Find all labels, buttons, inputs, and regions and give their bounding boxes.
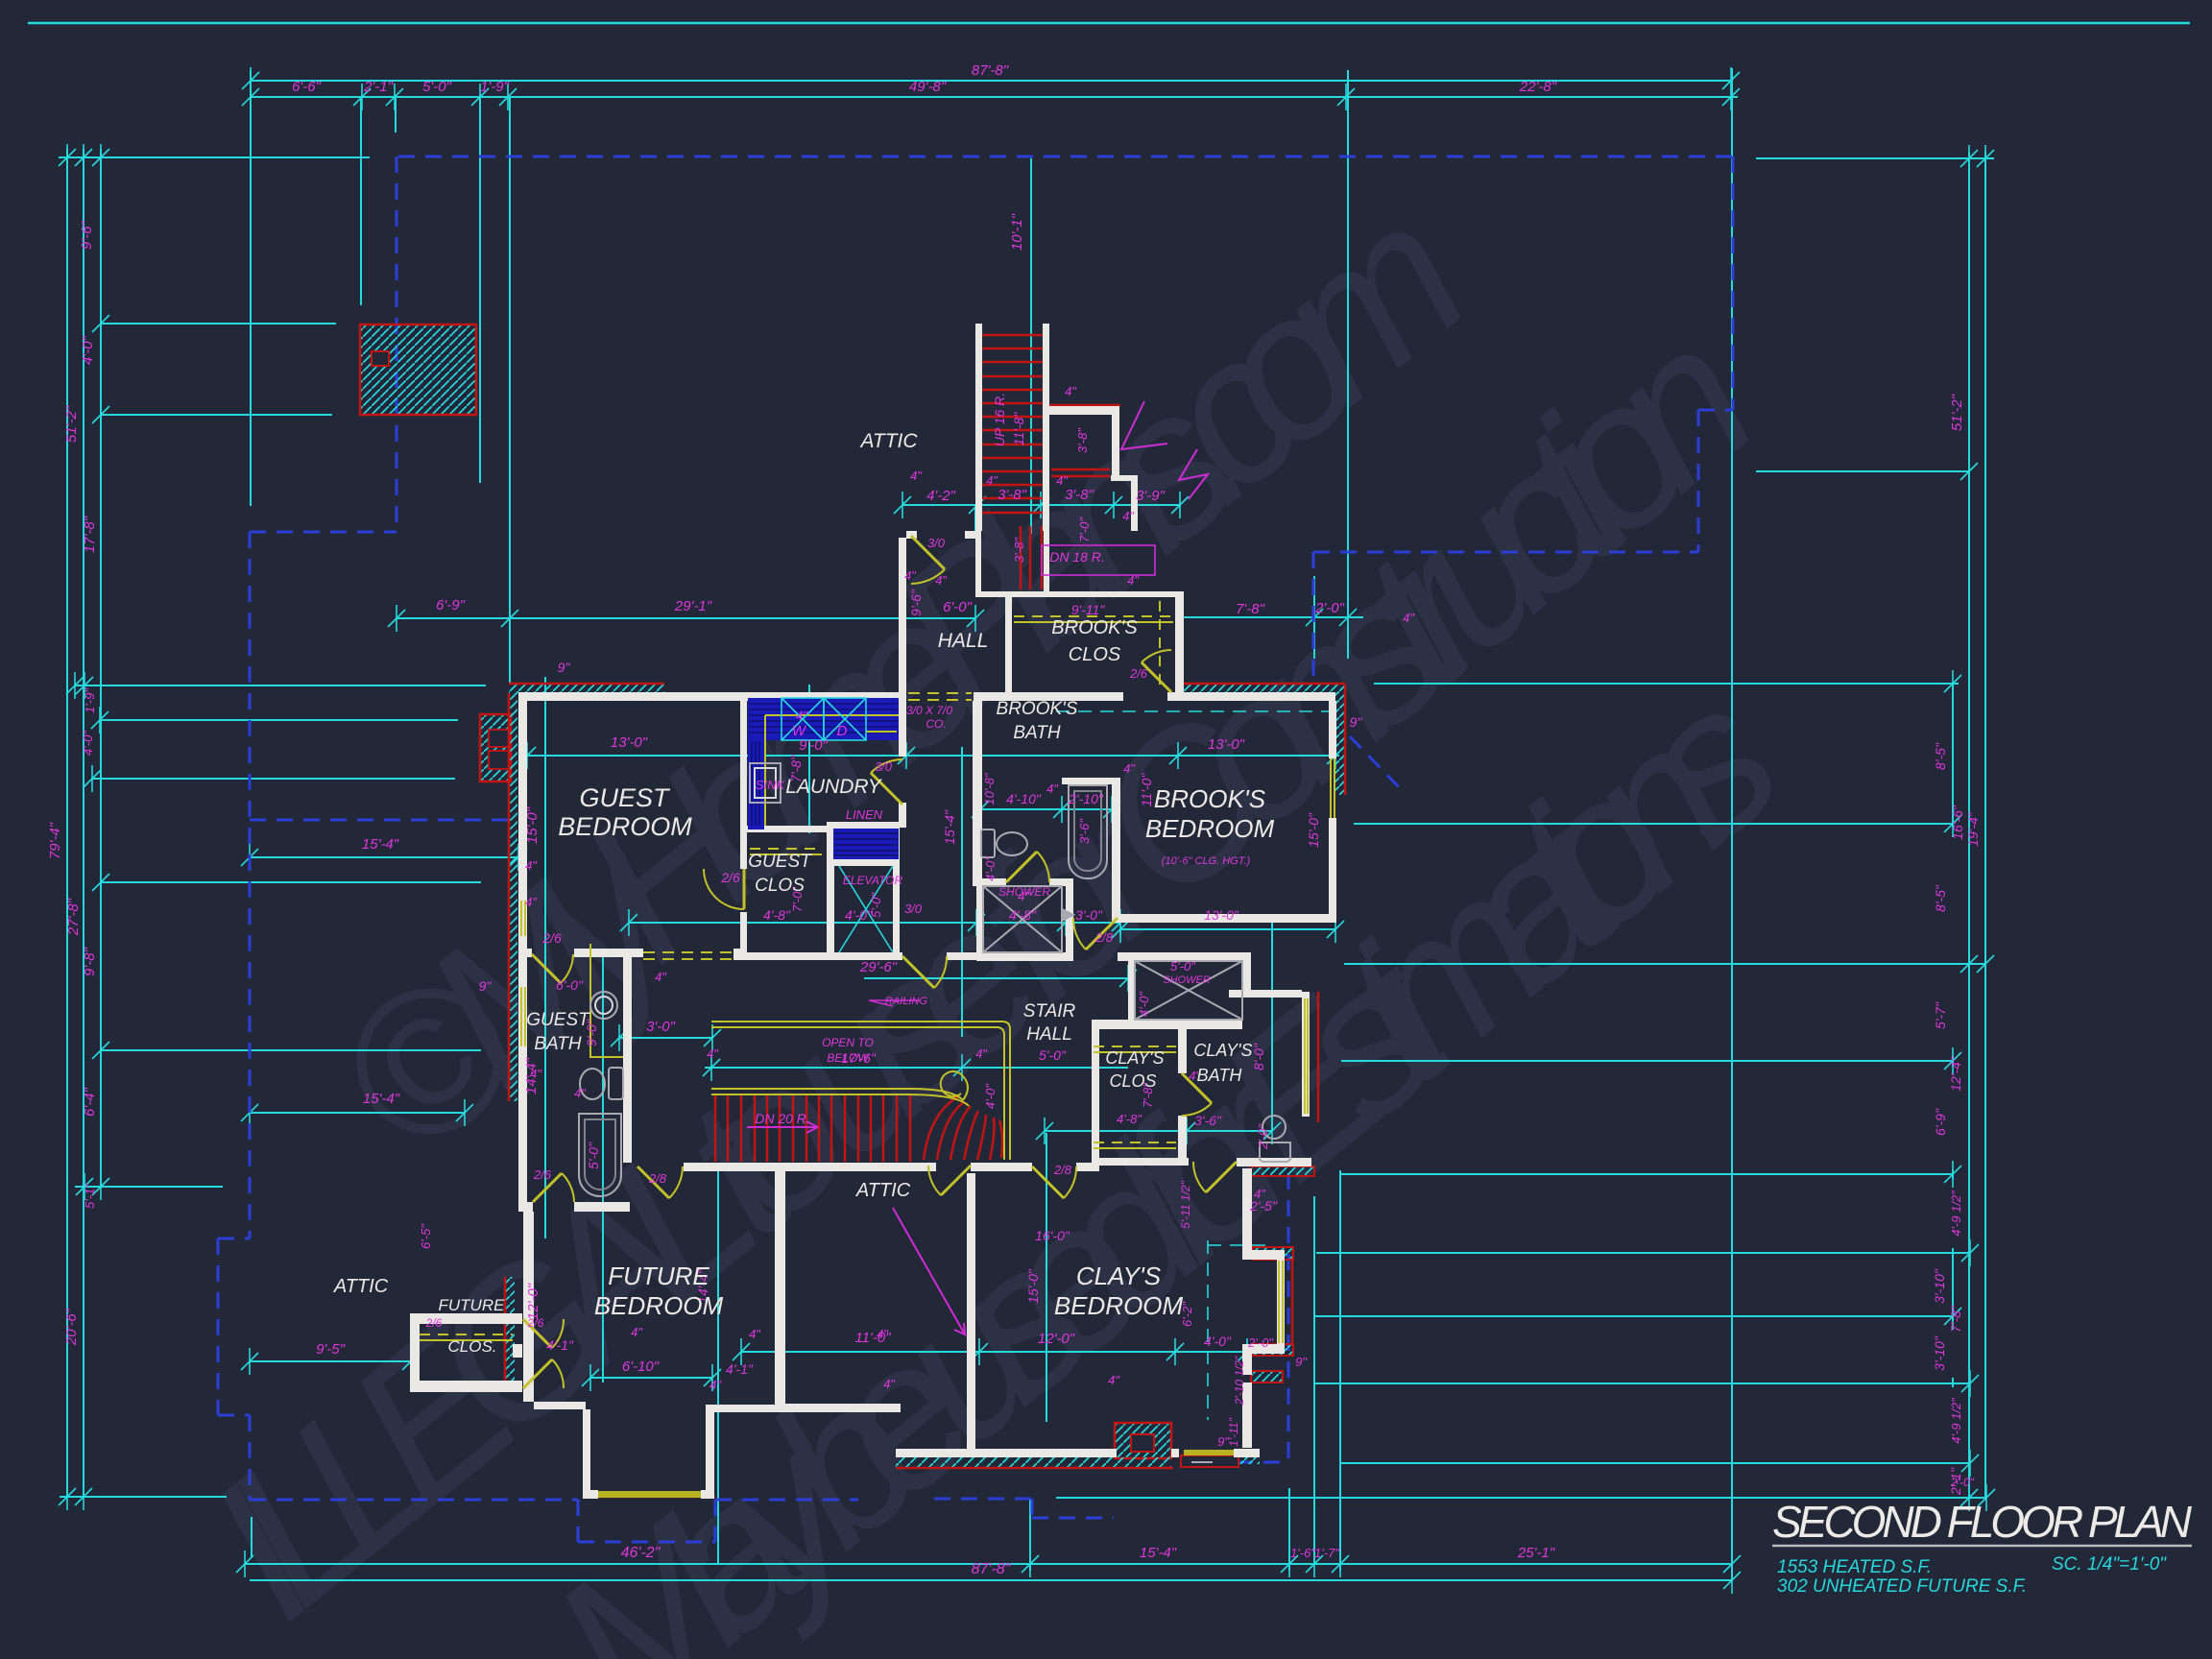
svg-text:9'-6": 9'-6"	[79, 220, 95, 250]
svg-text:12'-0": 12'-0"	[525, 1283, 541, 1320]
svg-text:HALL: HALL	[938, 630, 989, 652]
svg-text:ATTIC: ATTIC	[333, 1276, 389, 1297]
svg-text:2/6: 2/6	[533, 1167, 552, 1182]
svg-text:UP 16 R.: UP 16 R.	[992, 393, 1007, 446]
svg-text:CLAY'S: CLAY'S	[1193, 1041, 1252, 1060]
svg-text:2/6: 2/6	[425, 1316, 443, 1330]
svg-text:1'-9": 1'-9"	[480, 79, 510, 95]
svg-text:4'-9 1/2": 4'-9 1/2"	[1949, 1397, 1963, 1444]
svg-text:RAILING: RAILING	[885, 996, 927, 1007]
svg-text:7'-8": 7'-8"	[1948, 1305, 1963, 1333]
svg-text:4'-10": 4'-10"	[1006, 791, 1042, 806]
svg-text:4'-8": 4'-8"	[763, 907, 791, 923]
svg-text:15'-4": 15'-4"	[1140, 1545, 1177, 1561]
svg-text:4'-8": 4'-8"	[1009, 907, 1037, 923]
svg-text:4'-1": 4'-1"	[726, 1361, 754, 1377]
svg-text:19'-4": 19'-4"	[1965, 811, 1981, 847]
svg-text:7'-0": 7'-0"	[1077, 517, 1092, 542]
svg-text:15'-0": 15'-0"	[1025, 1268, 1041, 1304]
svg-text:4": 4"	[655, 970, 667, 984]
svg-text:4'-0": 4'-0"	[983, 855, 998, 881]
svg-text:2/6: 2/6	[527, 1316, 544, 1330]
svg-text:6'-9": 6'-9"	[1933, 1108, 1948, 1136]
svg-text:(10'-6" CLG. HGT.): (10'-6" CLG. HGT.)	[1162, 855, 1251, 867]
svg-text:4'-0": 4'-0"	[1204, 1334, 1232, 1349]
svg-text:2/6: 2/6	[541, 930, 562, 946]
svg-text:4": 4"	[1127, 573, 1140, 588]
svg-text:3/0: 3/0	[927, 536, 946, 550]
svg-text:17'-8": 17'-8"	[82, 516, 98, 553]
svg-text:13'-0": 13'-0"	[1208, 736, 1245, 753]
svg-text:4": 4"	[749, 1327, 761, 1341]
svg-text:4": 4"	[975, 1046, 988, 1061]
svg-text:BATH: BATH	[1013, 723, 1061, 743]
svg-text:11'-8": 11'-8"	[1011, 412, 1026, 446]
svg-text:2'-10 1/2": 2'-10 1/2"	[1233, 1356, 1246, 1406]
svg-text:4'-0": 4'-0"	[983, 1083, 998, 1109]
svg-text:3/0: 3/0	[875, 759, 893, 774]
svg-text:16'-0": 16'-0"	[1035, 1228, 1070, 1243]
svg-text:6'-6": 6'-6"	[292, 79, 322, 95]
svg-text:STAIR: STAIR	[1023, 1001, 1076, 1022]
svg-text:BEDROOM: BEDROOM	[1054, 1291, 1184, 1320]
svg-text:11'-0": 11'-0"	[1139, 773, 1154, 807]
svg-text:6'-4": 6'-4"	[82, 1087, 98, 1117]
svg-text:W: W	[792, 723, 807, 739]
svg-text:302 UNHEATED FUTURE S.F.: 302 UNHEATED FUTURE S.F.	[1777, 1576, 2027, 1597]
svg-text:GUEST: GUEST	[579, 783, 671, 812]
svg-text:HALL: HALL	[1026, 1024, 1072, 1045]
svg-text:ATTIC: ATTIC	[855, 1180, 911, 1201]
svg-text:15'-0": 15'-0"	[1306, 812, 1321, 848]
svg-text:15'-4": 15'-4"	[362, 836, 399, 853]
svg-text:4": 4"	[631, 1325, 643, 1339]
svg-text:87'-8": 87'-8"	[972, 62, 1009, 79]
svg-text:9'-11": 9'-11"	[1071, 602, 1106, 617]
svg-text:CLAY'S: CLAY'S	[1105, 1048, 1164, 1068]
svg-text:BEDROOM: BEDROOM	[1145, 814, 1275, 843]
svg-text:2'-0": 2'-0"	[1256, 1123, 1270, 1150]
svg-text:4": 4"	[910, 469, 923, 483]
svg-text:SECOND FLOOR PLAN: SECOND FLOOR PLAN	[1772, 1497, 2193, 1547]
svg-text:12'-0": 12'-0"	[1038, 1331, 1075, 1347]
svg-text:29'-6": 29'-6"	[859, 959, 898, 975]
svg-text:3'-0": 3'-0"	[646, 1019, 676, 1035]
svg-text:51'-2": 51'-2"	[1949, 394, 1965, 431]
svg-text:4'-0": 4'-0"	[81, 730, 95, 756]
svg-text:BATH: BATH	[534, 1034, 582, 1054]
svg-text:25'-1": 25'-1"	[1517, 1545, 1555, 1561]
svg-text:4'-2": 4'-2"	[926, 488, 956, 504]
svg-text:4": 4"	[904, 568, 917, 583]
svg-text:1'-11": 1'-11"	[1227, 1417, 1240, 1446]
svg-text:4": 4"	[796, 709, 808, 723]
svg-text:CLOS: CLOS	[755, 876, 805, 896]
svg-text:BELOW: BELOW	[827, 1051, 870, 1065]
svg-text:4": 4"	[1018, 889, 1030, 903]
svg-text:1553 HEATED S.F.: 1553 HEATED S.F.	[1777, 1557, 1932, 1577]
svg-text:4'-1": 4'-1"	[546, 1337, 574, 1353]
svg-text:4": 4"	[1065, 384, 1077, 398]
svg-text:FUTURE: FUTURE	[439, 1296, 506, 1314]
svg-text:5'-7": 5'-7"	[1933, 1001, 1948, 1029]
svg-text:3'-0": 3'-0"	[1075, 907, 1103, 923]
svg-text:6'-5": 6'-5"	[419, 1223, 433, 1249]
svg-text:BEDROOM: BEDROOM	[594, 1291, 724, 1320]
svg-text:3'-8": 3'-8"	[1075, 427, 1090, 453]
svg-text:3'-8": 3'-8"	[1065, 487, 1094, 503]
svg-text:ATTIC: ATTIC	[858, 430, 918, 452]
svg-text:6'-10": 6'-10"	[622, 1358, 660, 1375]
svg-text:4": 4"	[883, 1377, 896, 1391]
svg-text:9'-8": 9'-8"	[82, 947, 98, 976]
svg-text:SINK: SINK	[756, 778, 786, 792]
svg-text:2/8: 2/8	[1053, 1163, 1072, 1177]
svg-text:7'-8": 7'-8"	[1236, 601, 1265, 617]
svg-text:CLOS: CLOS	[1069, 644, 1121, 665]
svg-text:79'-4": 79'-4"	[47, 822, 63, 859]
svg-text:5'-0": 5'-0"	[1039, 1047, 1067, 1063]
svg-text:BROOK'S: BROOK'S	[1154, 784, 1266, 813]
svg-text:12'-4": 12'-4"	[1948, 1056, 1963, 1092]
svg-text:20'-6": 20'-6"	[63, 1308, 80, 1346]
svg-text:9'-5": 9'-5"	[316, 1341, 346, 1358]
svg-text:3/0: 3/0	[904, 902, 923, 916]
svg-text:4": 4"	[877, 1327, 889, 1341]
svg-text:4": 4"	[1056, 473, 1069, 488]
svg-text:49'-8": 49'-8"	[909, 79, 947, 95]
svg-text:2'-0": 2'-0"	[1314, 600, 1345, 616]
svg-text:CO.: CO.	[926, 717, 946, 731]
svg-text:GUEST: GUEST	[748, 852, 812, 872]
svg-text:46'-2": 46'-2"	[621, 1545, 661, 1561]
svg-text:2/6: 2/6	[720, 870, 740, 885]
svg-text:CLOS.: CLOS.	[447, 1337, 496, 1356]
svg-text:1'-7": 1'-7"	[1314, 1546, 1340, 1560]
svg-text:5'-0": 5'-0"	[1170, 959, 1196, 974]
svg-text:10'-8": 10'-8"	[982, 772, 997, 805]
svg-text:BROOK'S: BROOK'S	[1051, 617, 1138, 638]
svg-text:8'-5": 8'-5"	[1933, 884, 1948, 912]
svg-text:4": 4"	[525, 858, 538, 873]
svg-text:87'-8": 87'-8"	[972, 1561, 1012, 1577]
svg-text:SC. 1/4"=1'-0": SC. 1/4"=1'-0"	[2052, 1554, 2167, 1575]
svg-text:10'-1": 10'-1"	[1009, 213, 1025, 251]
svg-text:DN 20 R.: DN 20 R.	[755, 1111, 810, 1126]
svg-text:4": 4"	[1123, 761, 1136, 776]
svg-text:6'-0": 6'-0"	[556, 977, 584, 993]
svg-text:2'-0": 2'-0"	[1247, 1335, 1274, 1350]
svg-text:13'-0": 13'-0"	[611, 734, 648, 751]
svg-text:5'-0": 5'-0"	[586, 1142, 601, 1169]
svg-text:BROOK'S: BROOK'S	[997, 699, 1078, 719]
svg-text:4": 4"	[574, 1086, 587, 1100]
svg-text:29'-1": 29'-1"	[674, 598, 712, 614]
svg-text:6'-0": 6'-0"	[943, 599, 973, 615]
svg-text:3'-6": 3'-6"	[1194, 1113, 1222, 1128]
svg-text:16'-6": 16'-6"	[1950, 805, 1965, 840]
svg-text:15'-4": 15'-4"	[363, 1091, 400, 1107]
svg-text:BEDROOM: BEDROOM	[558, 812, 692, 841]
svg-text:9'-6": 9'-6"	[908, 589, 924, 616]
svg-text:D: D	[837, 723, 848, 739]
svg-text:2'-0": 2'-0"	[1950, 1476, 1975, 1489]
svg-text:4": 4"	[1254, 1187, 1266, 1201]
svg-text:OPEN TO: OPEN TO	[822, 1036, 874, 1049]
svg-text:27'-8": 27'-8"	[65, 898, 82, 936]
svg-text:LAUNDRY: LAUNDRY	[785, 776, 883, 798]
svg-text:BATH: BATH	[1197, 1066, 1243, 1085]
svg-text:4": 4"	[1046, 781, 1059, 796]
svg-text:2/8: 2/8	[648, 1171, 667, 1186]
svg-text:2/6: 2/6	[1129, 666, 1148, 681]
svg-text:GUEST: GUEST	[526, 1010, 590, 1030]
svg-text:3'-6": 3'-6"	[1077, 818, 1092, 844]
svg-text:4": 4"	[525, 895, 538, 909]
svg-text:22'-8": 22'-8"	[1519, 79, 1557, 95]
svg-text:CLOS: CLOS	[1109, 1071, 1156, 1091]
svg-text:15'-0": 15'-0"	[524, 806, 541, 844]
svg-text:8'-5": 8'-5"	[1933, 742, 1948, 770]
svg-text:SHOWER: SHOWER	[1163, 974, 1211, 986]
svg-text:51'-2": 51'-2"	[63, 405, 80, 443]
svg-text:2'-10": 2'-10"	[1068, 791, 1104, 806]
svg-text:13'-0": 13'-0"	[1204, 907, 1239, 923]
svg-text:6'-9": 6'-9"	[436, 597, 466, 613]
svg-text:9": 9"	[479, 978, 493, 994]
svg-text:4": 4"	[935, 573, 948, 588]
svg-text:3'-10": 3'-10"	[1932, 1335, 1947, 1371]
svg-text:9": 9"	[558, 660, 571, 675]
svg-text:5'-0": 5'-0"	[422, 79, 452, 95]
svg-text:1'-9": 1'-9"	[83, 687, 97, 713]
svg-text:5'-0": 5'-0"	[869, 892, 883, 918]
svg-text:15'-4": 15'-4"	[942, 809, 957, 845]
svg-text:9": 9"	[1295, 1355, 1308, 1369]
svg-text:9": 9"	[1217, 1434, 1230, 1449]
svg-text:4'-8": 4'-8"	[1117, 1112, 1142, 1126]
svg-text:3'-9": 3'-9"	[1136, 488, 1166, 504]
svg-text:4": 4"	[530, 1067, 542, 1081]
svg-text:4": 4"	[986, 473, 998, 488]
svg-text:4": 4"	[1122, 509, 1135, 523]
svg-text:FUTURE: FUTURE	[608, 1262, 709, 1290]
svg-text:CLAY'S: CLAY'S	[1076, 1262, 1162, 1290]
svg-text:5'-11 1/2": 5'-11 1/2"	[1179, 1180, 1192, 1228]
svg-text:3'-10": 3'-10"	[1932, 1268, 1947, 1304]
svg-text:4": 4"	[1108, 1373, 1120, 1387]
svg-text:3'-8": 3'-8"	[998, 487, 1027, 503]
svg-text:1'-6": 1'-6"	[1290, 1546, 1316, 1560]
svg-text:4'-0": 4'-0"	[80, 335, 96, 365]
svg-text:9": 9"	[1350, 714, 1363, 730]
svg-text:2'-1": 2'-1"	[363, 79, 394, 95]
svg-text:4'-0": 4'-0"	[1137, 991, 1151, 1017]
svg-text:4": 4"	[1403, 611, 1415, 625]
svg-text:9'-0": 9'-0"	[799, 737, 829, 754]
svg-text:4": 4"	[707, 1046, 719, 1061]
svg-text:4": 4"	[709, 1378, 722, 1392]
svg-text:5'-1": 5'-1"	[83, 1183, 97, 1209]
svg-text:4'-9 1/2": 4'-9 1/2"	[1949, 1190, 1963, 1237]
svg-text:3'-8": 3'-8"	[1012, 537, 1026, 563]
svg-text:8'-0": 8'-0"	[1251, 1043, 1266, 1070]
svg-text:LINEN: LINEN	[846, 807, 883, 822]
svg-text:DN 18 R.: DN 18 R.	[1049, 549, 1105, 565]
svg-text:3/0 X 7/0: 3/0 X 7/0	[906, 704, 952, 717]
svg-text:2/8: 2/8	[1094, 930, 1114, 945]
svg-text:ELEVATOR: ELEVATOR	[843, 874, 903, 887]
